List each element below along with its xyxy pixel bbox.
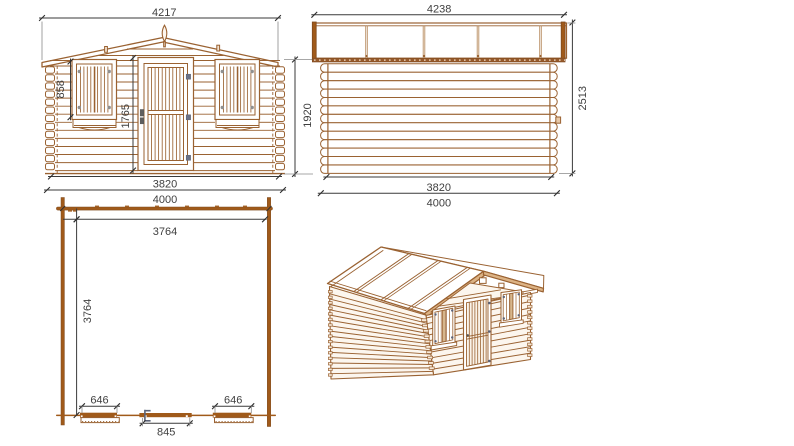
svg-text:4000: 4000 xyxy=(153,194,177,206)
svg-text:4217: 4217 xyxy=(152,7,176,19)
svg-text:4000: 4000 xyxy=(427,197,451,209)
svg-text:2513: 2513 xyxy=(577,86,589,110)
svg-text:3764: 3764 xyxy=(82,299,94,323)
svg-text:858: 858 xyxy=(55,80,67,98)
svg-text:1920: 1920 xyxy=(302,103,314,127)
svg-text:845: 845 xyxy=(157,426,175,438)
svg-text:4238: 4238 xyxy=(427,4,451,16)
svg-text:646: 646 xyxy=(224,394,242,406)
svg-text:3820: 3820 xyxy=(427,182,451,194)
svg-text:3820: 3820 xyxy=(153,179,177,191)
svg-text:3764: 3764 xyxy=(153,226,177,238)
svg-text:1765: 1765 xyxy=(120,104,132,128)
svg-text:646: 646 xyxy=(90,394,108,406)
